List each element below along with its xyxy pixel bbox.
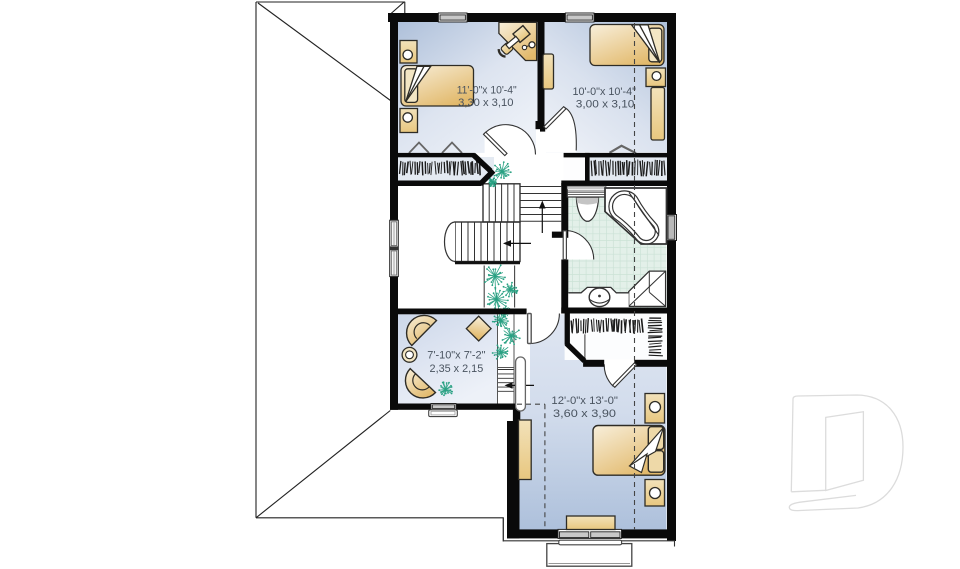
svg-text:10'-0"x 10'-4": 10'-0"x 10'-4" — [572, 86, 636, 98]
svg-text:12'-0"x 13'-0": 12'-0"x 13'-0" — [551, 395, 618, 407]
svg-text:7'-10"x 7'-2": 7'-10"x 7'-2" — [427, 350, 485, 362]
svg-text:3,00 x 3,10: 3,00 x 3,10 — [576, 99, 635, 111]
svg-text:3,30 x 3,10: 3,30 x 3,10 — [458, 97, 513, 109]
svg-text:2,35 x 2,15: 2,35 x 2,15 — [430, 363, 484, 375]
svg-text:3,60 x 3,90: 3,60 x 3,90 — [553, 408, 616, 420]
svg-text:11'-0"x 10'-4": 11'-0"x 10'-4" — [457, 85, 517, 97]
